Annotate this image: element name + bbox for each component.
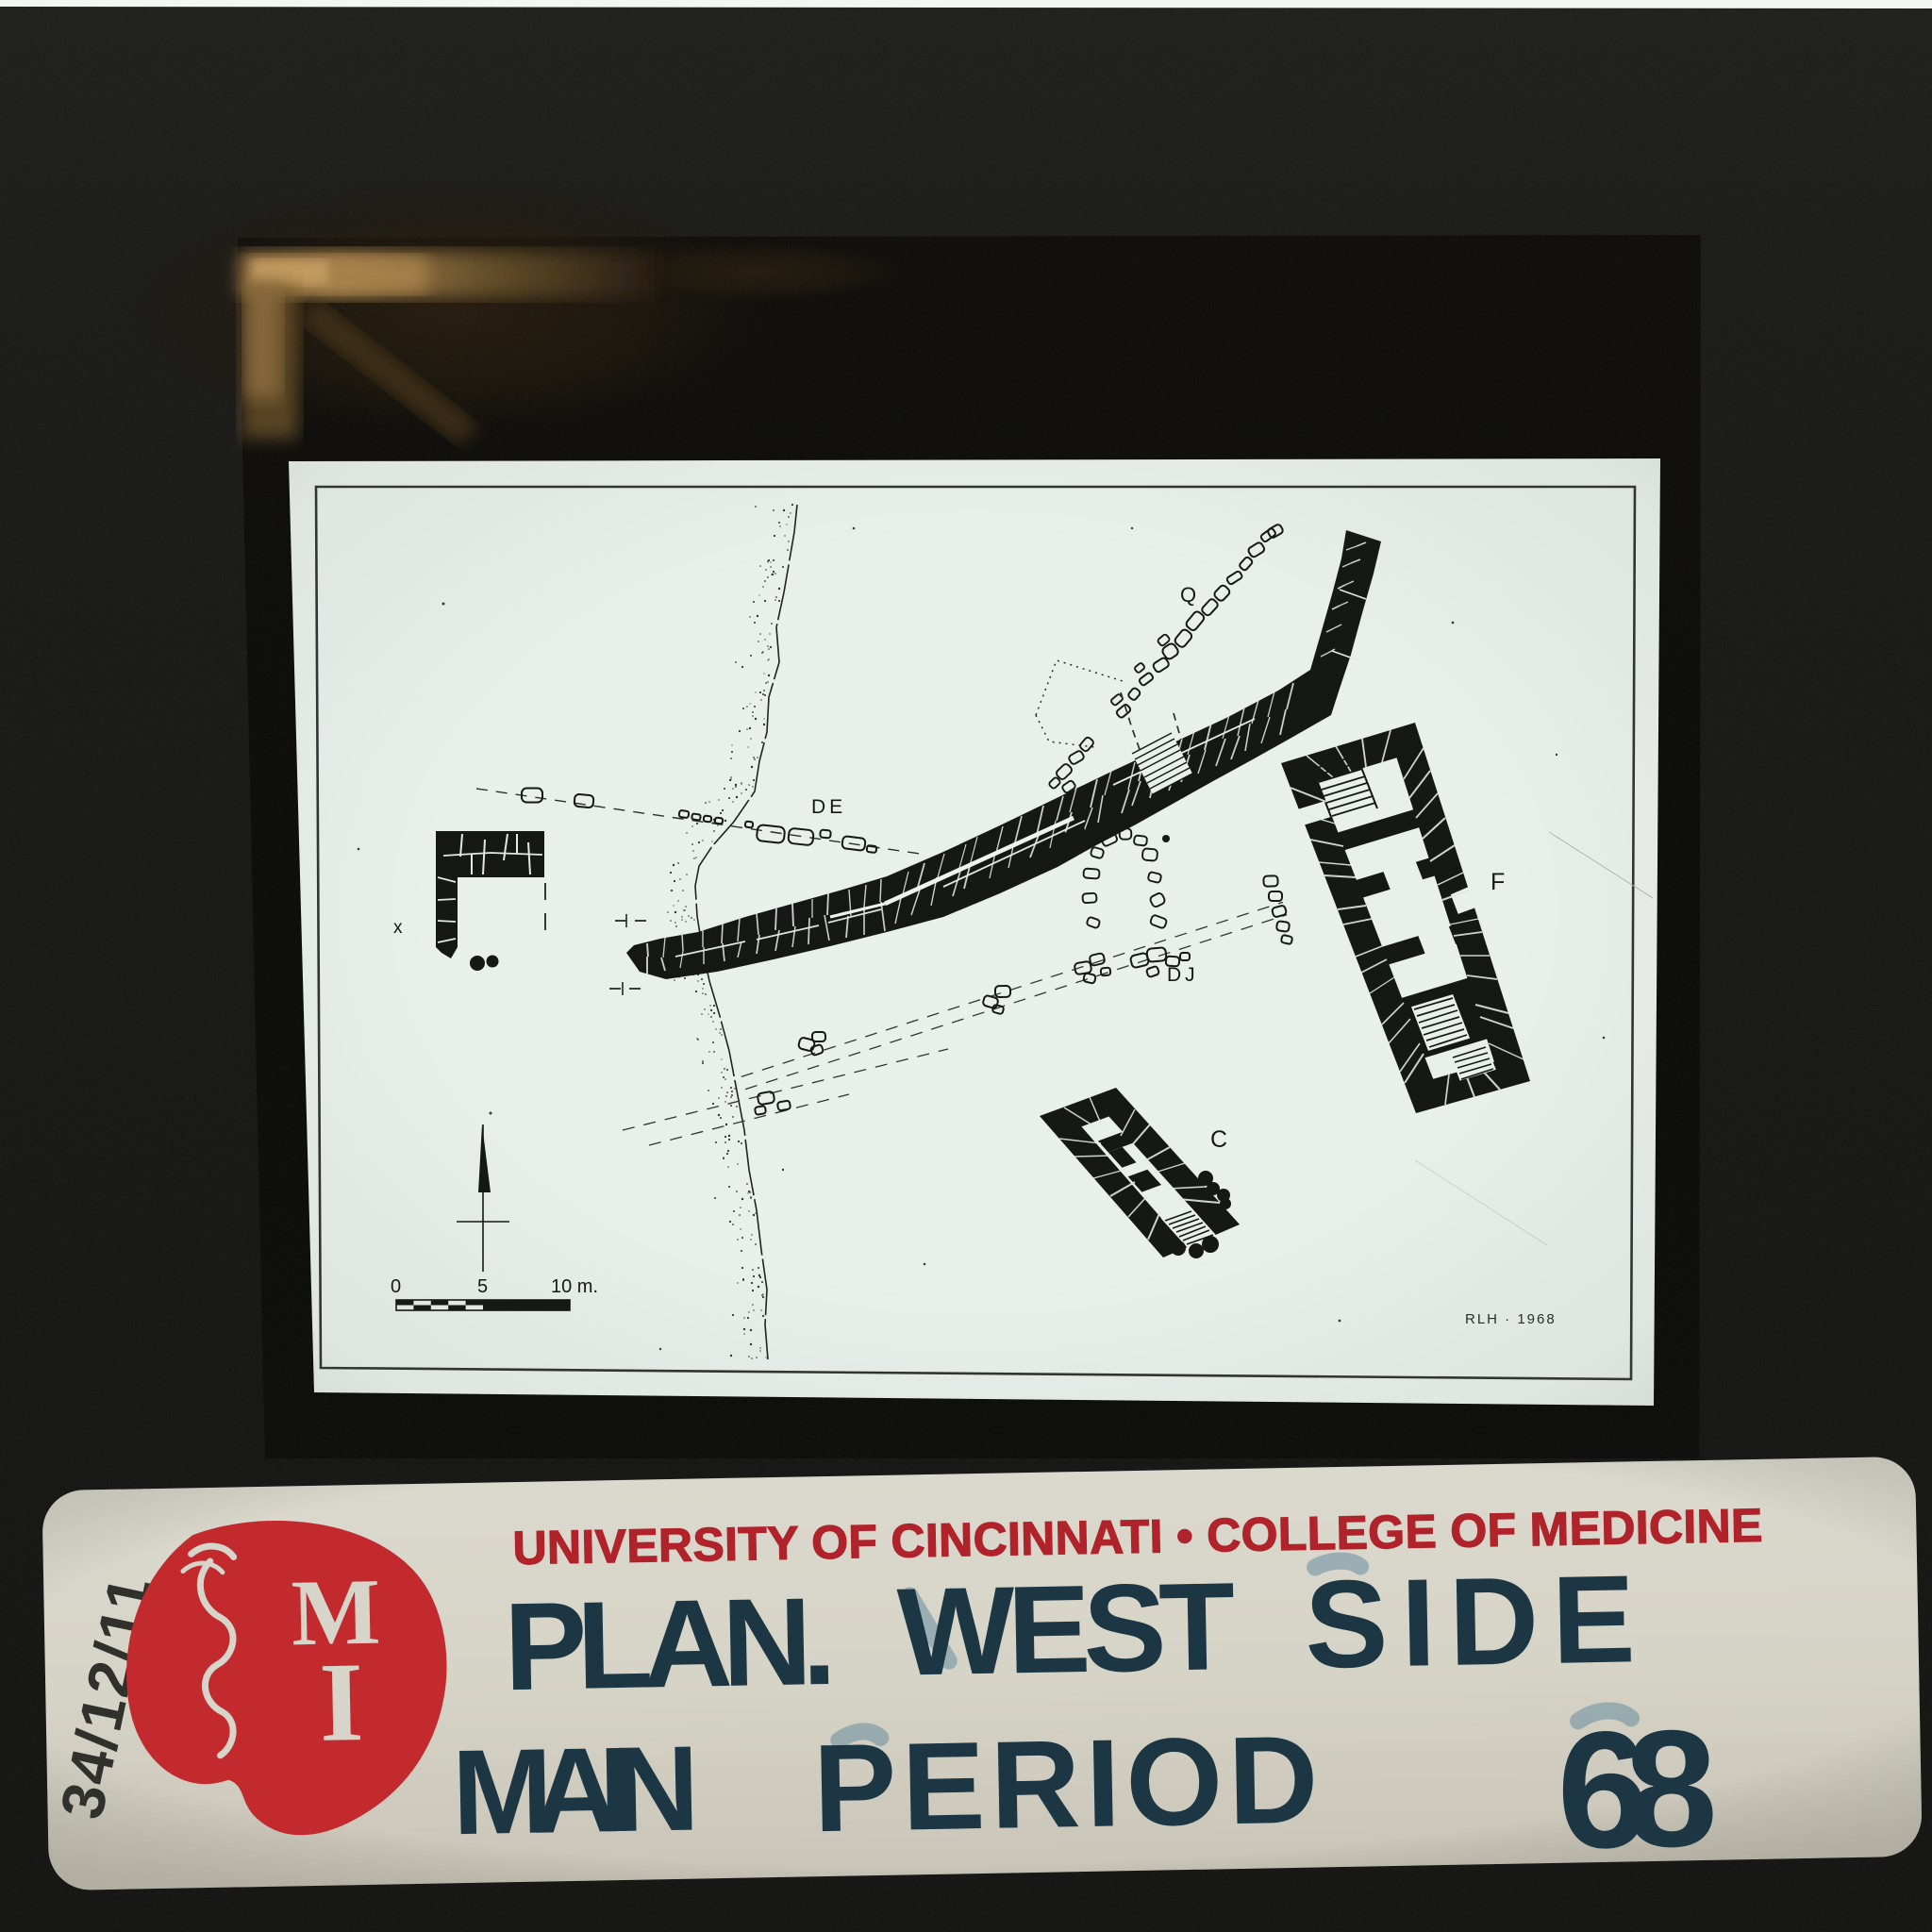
svg-text:68: 68 xyxy=(1556,1696,1720,1884)
svg-text:WEST: WEST xyxy=(896,1557,1237,1702)
svg-text:PLAN.: PLAN. xyxy=(503,1572,838,1716)
svg-text:S I D E: S I D E xyxy=(1304,1549,1637,1693)
svg-text:PERIOD: PERIOD xyxy=(812,1709,1320,1857)
svg-text:MAIN: MAIN xyxy=(451,1722,701,1861)
svg-text:I: I xyxy=(318,1639,364,1765)
